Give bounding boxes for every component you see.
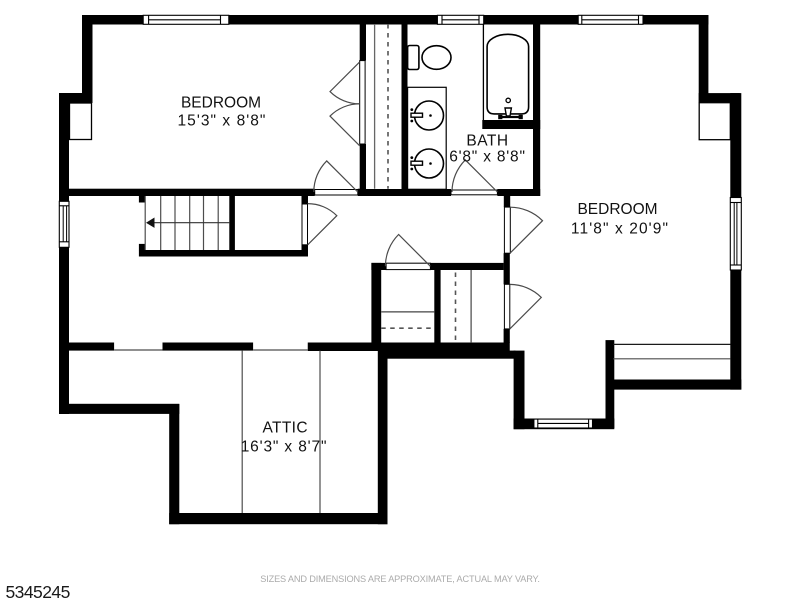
svg-text:6'8" x 8'8": 6'8" x 8'8": [449, 149, 526, 166]
svg-text:16'3" x 8'7": 16'3" x 8'7": [241, 439, 328, 456]
svg-text:11'8" x 20'9": 11'8" x 20'9": [571, 221, 669, 238]
svg-text:BATH: BATH: [466, 133, 508, 150]
svg-text:5345245: 5345245: [6, 582, 70, 600]
svg-text:ATTIC: ATTIC: [263, 420, 308, 437]
svg-text:BEDROOM: BEDROOM: [577, 201, 657, 218]
svg-text:15'3" x 8'8": 15'3" x 8'8": [178, 113, 267, 130]
svg-text:BEDROOM: BEDROOM: [181, 95, 261, 112]
svg-text:SIZES AND DIMENSIONS ARE APPRO: SIZES AND DIMENSIONS ARE APPROXIMATE, AC…: [260, 574, 540, 584]
